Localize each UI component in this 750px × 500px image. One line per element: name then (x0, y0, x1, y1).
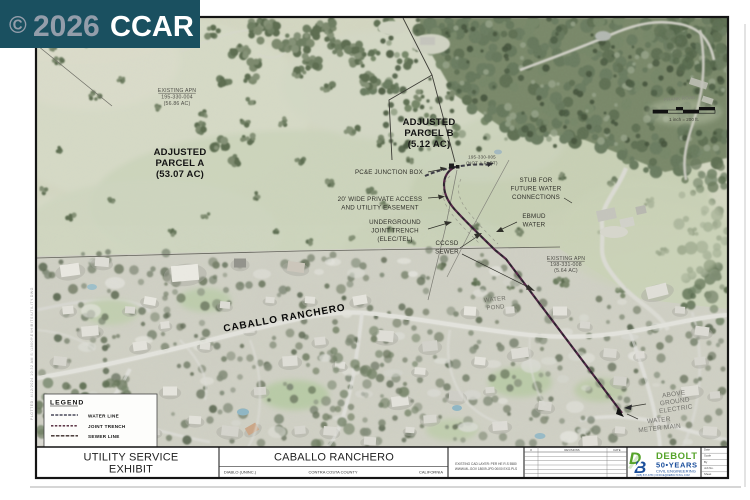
svg-text:CONTRA COSTA COUNTY: CONTRA COSTA COUNTY (308, 470, 357, 475)
svg-text:WATER: WATER (523, 222, 546, 229)
svg-text:(56.86 AC): (56.86 AC) (164, 101, 191, 107)
svg-text:(53.07 AC): (53.07 AC) (156, 169, 204, 180)
svg-text:REVISIONS: REVISIONS (564, 448, 579, 452)
svg-text:CONNECTIONS: CONNECTIONS (512, 194, 560, 201)
svg-text:1 inch = 200 ft.: 1 inch = 200 ft. (669, 117, 699, 122)
svg-text:(ELEC/TEL): (ELEC/TEL) (377, 236, 412, 243)
svg-text:JOINT TRENCH: JOINT TRENCH (371, 228, 419, 235)
svg-text:Sheet: Sheet (704, 472, 712, 476)
svg-text:Scale: Scale (704, 454, 711, 458)
svg-text:ADJUSTED: ADJUSTED (154, 147, 207, 158)
svg-text:PLOTTED: 4/12/2024 10:32 AM S: PLOTTED: 4/12/2024 10:32 AM S:\18009\EXH… (30, 287, 34, 420)
svg-text:Job No.: Job No. (704, 466, 714, 470)
svg-text:(5.64 AC): (5.64 AC) (554, 268, 578, 274)
svg-text:LEGEND: LEGEND (50, 400, 84, 407)
svg-text:WWW.ML.GOV 18009-JPD 00/00 EX: WWW.ML.GOV 18009-JPD 00/00 EXG.PLS (455, 467, 517, 471)
svg-text:EXHIBIT: EXHIBIT (109, 464, 153, 476)
svg-text:PARCEL B: PARCEL B (404, 128, 453, 139)
svg-text:UTILITY SERVICE: UTILITY SERVICE (84, 452, 179, 464)
svg-text:(NOT A PART): (NOT A PART) (466, 161, 498, 166)
svg-text:FUTURE WATER: FUTURE WATER (511, 186, 562, 193)
svg-text:ADJUSTED: ADJUSTED (403, 117, 456, 128)
svg-text:CABALLO RANCHERO: CABALLO RANCHERO (274, 452, 394, 464)
svg-text:CALIFORNIA: CALIFORNIA (419, 470, 443, 475)
svg-text:PARCEL A: PARCEL A (156, 158, 205, 169)
svg-text:20' WIDE PRIVATE ACCESS: 20' WIDE PRIVATE ACCESS (338, 196, 423, 203)
svg-text:(5.12 AC): (5.12 AC) (408, 139, 451, 150)
svg-text:(925) 837-3780 | OFFICE@DEBOLT: (925) 837-3780 | OFFICE@DEBOLTCIVIL.COM (636, 474, 689, 477)
svg-text:STUB FOR: STUB FOR (520, 177, 553, 184)
svg-text:SEWER LINE: SEWER LINE (88, 434, 120, 439)
svg-text:UNDERGROUND: UNDERGROUND (369, 219, 421, 226)
svg-text:JOINT TRENCH: JOINT TRENCH (88, 424, 126, 429)
svg-text:SEWER: SEWER (435, 249, 459, 256)
svg-text:CCAR: CCAR (110, 11, 194, 43)
svg-text:CIVIL ENGINEERING: CIVIL ENGINEERING (656, 469, 696, 474)
svg-text:EBMUD: EBMUD (522, 213, 546, 220)
svg-text:AND UTILITY EASEMENT: AND UTILITY EASEMENT (341, 205, 418, 212)
svg-text:195-330-004: 195-330-004 (161, 95, 193, 101)
svg-text:CCCSD: CCCSD (435, 240, 458, 247)
svg-text:2026: 2026 (33, 10, 100, 43)
svg-text:DIABLO (UNINC.): DIABLO (UNINC.) (224, 470, 257, 475)
svg-text:WATER LINE: WATER LINE (88, 413, 119, 418)
svg-text:DATE: DATE (613, 448, 620, 452)
svg-text:PC&E JUNCTION BOX: PC&E JUNCTION BOX (355, 169, 423, 176)
svg-text:Date: Date (704, 447, 710, 451)
svg-text:EXISTING CAD LAYER: PER HE R.S: EXISTING CAD LAYER: PER HE R.S 5580 (455, 462, 517, 466)
svg-text:195-330-005: 195-330-005 (468, 155, 496, 160)
svg-text:©: © (9, 12, 27, 39)
